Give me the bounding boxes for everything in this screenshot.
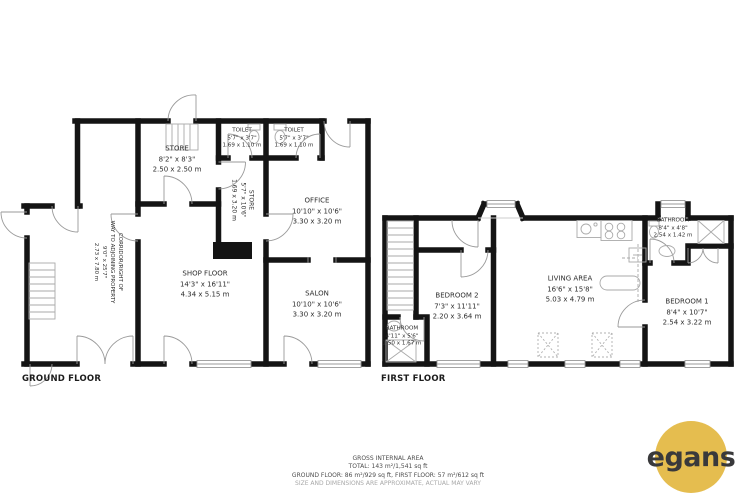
room-label-bathroom-right: BATHROOM 8'4" x 4'8" 2.54 x 1.42 m bbox=[653, 218, 692, 241]
floorplan-page: STORE 8'2" x 8'3" 2.50 x 2.50 m TOILET 5… bbox=[0, 0, 750, 500]
room-label-office: OFFICE 10'10" x 10'6" 3.30 x 3.20 m bbox=[292, 195, 342, 227]
room-label-shop-floor: SHOP FLOOR 14'3" x 16'11" 4.34 x 5.15 m bbox=[180, 268, 230, 300]
chimney-block bbox=[213, 242, 252, 259]
room-label-toilet-1: TOILET 5'7" x 3'7" 1.69 x 1.10 m bbox=[222, 128, 261, 151]
floor-areas-line: GROUND FLOOR: 86 m²/929 sq ft, FIRST FLO… bbox=[292, 472, 484, 480]
room-label-bathroom-left: BATHROOM 4'11" x 5'6" 1.50 x 1.67 m bbox=[382, 326, 421, 349]
room-label-bedroom-2: BEDROOM 2 7'3" x 11'11" 2.20 x 3.64 m bbox=[433, 290, 482, 322]
disclaimer-line: SIZE AND DIMENSIONS ARE APPROXIMATE, ACT… bbox=[292, 480, 484, 488]
first-floor-stairs bbox=[387, 221, 414, 310]
egans-logo: egans bbox=[655, 421, 727, 493]
skylight-markers bbox=[538, 333, 612, 357]
room-label-corridor: CORRIDOR/RIGHT OF WAY TO ADJOINING PROPE… bbox=[91, 221, 123, 304]
room-label-bedroom-1: BEDROOM 1 8'4" x 10'7" 2.54 x 3.22 m bbox=[663, 296, 712, 328]
area-summary: GROSS INTERNAL AREA TOTAL: 143 m²/1,541 … bbox=[292, 455, 484, 488]
room-label-toilet-2: TOILET 5'7" x 3'7" 1.69 x 1.10 m bbox=[274, 128, 313, 151]
total-area-line: TOTAL: 143 m²/1,541 sq ft bbox=[292, 463, 484, 471]
room-label-store-1: STORE 8'2" x 8'3" 2.50 x 2.50 m bbox=[153, 143, 202, 175]
ground-floor-title: GROUND FLOOR bbox=[22, 374, 101, 384]
egans-logo-text: egans bbox=[647, 442, 736, 473]
room-label-salon: SALON 10'10" x 10'6" 3.30 x 3.20 m bbox=[292, 288, 342, 320]
room-label-living-area: LIVING AREA 16'6" x 15'8" 5.03 x 4.79 m bbox=[546, 273, 595, 305]
first-floor-title: FIRST FLOOR bbox=[381, 374, 446, 384]
room-label-store-2: STORE 5'7" x 10'6" 1.69 x 3.20 m bbox=[229, 179, 254, 221]
gross-internal-area-line: GROSS INTERNAL AREA bbox=[292, 455, 484, 463]
